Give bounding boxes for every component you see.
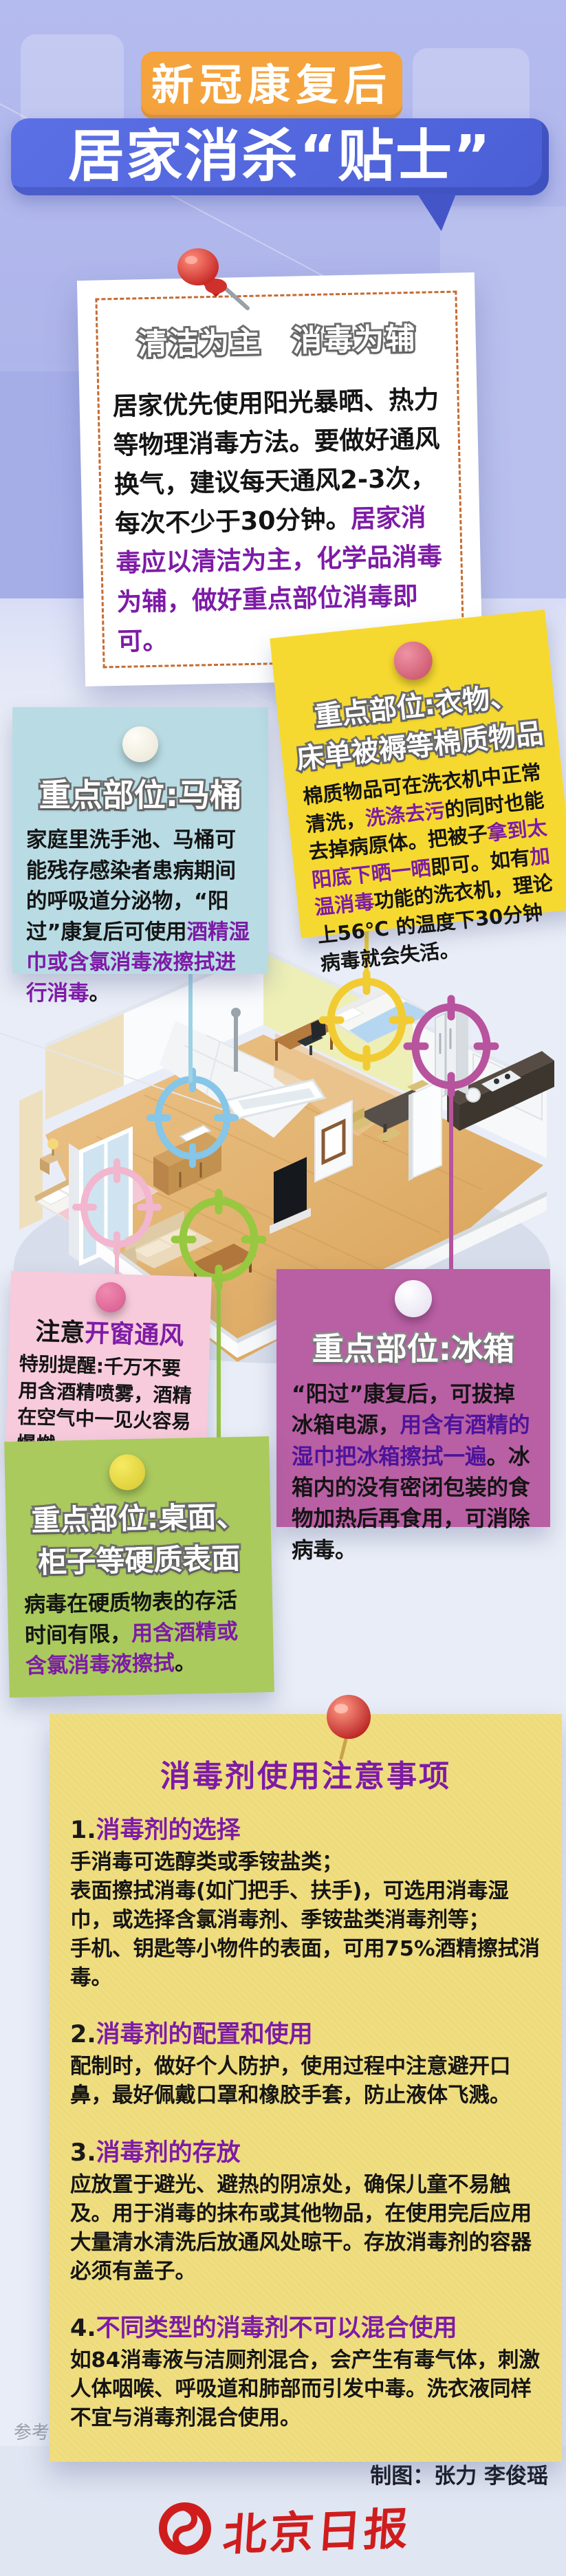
white-pin-icon <box>395 1280 432 1317</box>
tips-title: 消毒剂使用注意事项 <box>70 1751 541 1795</box>
white-pin-icon <box>122 726 158 762</box>
logo-text: 北京日报 <box>221 2493 413 2563</box>
note-toilet: 重点部位:马桶 家庭里洗手池、马桶可能残存感染者患病期间的呼吸道分泌物，“阳过”… <box>12 707 268 974</box>
note-toilet-body: 家庭里洗手池、马桶可能残存感染者患病期间的呼吸道分泌物，“阳过”康复后可使用酒精… <box>26 825 254 1009</box>
pink-pin-icon <box>392 640 435 682</box>
leader-line-table <box>217 1277 221 1444</box>
note-surfaces-title: 重点部位:桌面、 柜子等硬质表面 <box>6 1493 272 1582</box>
note-fabric: 重点部位:衣物、 床单被褥等棉质物品 棉质物品可在洗衣机中正常清洗，洗涤去污的同… <box>270 609 566 938</box>
note-fridge-title: 重点部位:冰箱 <box>276 1324 550 1370</box>
header-badge: 新冠康复后 <box>141 52 402 119</box>
open-door <box>409 1081 442 1181</box>
intro-card-body: 居家优先使用阳光暴晒、热力等物理消毒方法。要做好通风换气，建议每天通风2-3次，… <box>112 380 449 662</box>
credit-text: 制图：张力 李俊瑶 <box>370 2458 548 2489</box>
logo-mark-icon <box>156 2500 214 2557</box>
red-ballpin-icon <box>311 1687 387 1769</box>
yellow-pin-icon <box>109 1454 146 1491</box>
tip-head: 1.消毒剂的选择 <box>70 1810 541 1846</box>
note-fridge: 重点部位:冰箱 “阳过”康复后，可拔掉冰箱电源，用含有酒精的湿巾把冰箱擦拭一遍。… <box>276 1269 550 1527</box>
tip-body: 手消毒可选醇类或季铵盐类； 表面擦拭消毒(如门把手、扶手)，可选用消毒湿巾，或选… <box>70 1848 541 1993</box>
tip-head: 3.消毒剂的存放 <box>70 2133 541 2168</box>
page-title: 居家消杀“贴士” <box>11 118 549 195</box>
note-fabric-body: 棉质物品可在洗衣机中正常清洗，洗涤去污的同时也能去掉病原体。把被子拿到太阳底下晒… <box>301 758 564 978</box>
note-window-title: 注意开窗通风 <box>9 1310 210 1352</box>
pink-pin-icon <box>95 1281 126 1312</box>
infographic-poster: 新冠康复后 居家消杀“贴士” 清洁为主 消毒为辅 居家优先使用阳光暴晒、热力等物… <box>0 0 566 2576</box>
tip-body: 如84消毒液与洁厕剂混合，会产生有毒气体，刺激人体咽喉、呼吸道和肺部而引发中毒。… <box>70 2346 541 2433</box>
tip-section: 2.消毒剂的配置和使用 配制时，做好个人防护，使用过程中注意避开口鼻，最好佩戴口… <box>70 2015 541 2110</box>
note-window: 注意开窗通风 特别提醒:千万不要用含酒精喷雾，酒精在空气中一见火容易爆燃。 <box>6 1270 212 1453</box>
tip-head: 2.消毒剂的配置和使用 <box>70 2015 541 2050</box>
tip-body: 应放置于避光、避热的阴凉处，确保儿童不易触及。用于消毒的抹布或其他物品，在使用完… <box>70 2171 541 2286</box>
red-pushpin-icon <box>168 242 264 318</box>
tip-section: 4.不同类型的消毒剂不可以混合使用 如84消毒液与洁厕剂混合，会产生有毒气体，刺… <box>70 2308 541 2433</box>
tip-head: 4.不同类型的消毒剂不可以混合使用 <box>70 2308 541 2344</box>
note-surfaces-body: 病毒在硬质物表的存活时间有限，用含酒精或含氯消毒液擦拭。 <box>24 1585 258 1682</box>
leader-line-fridge <box>449 1085 453 1274</box>
wall-cream-west <box>19 1090 43 1230</box>
note-toilet-title: 重点部位:马桶 <box>12 770 268 816</box>
note-fridge-body: “阳过”康复后，可拔掉冰箱电源，用含有酒精的湿巾把冰箱擦拭一遍。冰箱内的没有密闭… <box>292 1379 535 1566</box>
note-disinfectant-tips: 消毒剂使用注意事项 1.消毒剂的选择 手消毒可选醇类或季铵盐类； 表面擦拭消毒(… <box>50 1714 562 2462</box>
tip-section: 1.消毒剂的选择 手消毒可选醇类或季铵盐类； 表面擦拭消毒(如门把手、扶手)，可… <box>70 1810 541 1993</box>
beijing-daily-logo: 北京日报 <box>0 2497 566 2560</box>
intro-card-title: 清洁为主 消毒为辅 <box>111 314 443 364</box>
tip-body: 配制时，做好个人防护，使用过程中注意避开口鼻，最好佩戴口罩和橡胶手套，防止液体飞… <box>70 2053 541 2110</box>
note-surfaces: 重点部位:桌面、 柜子等硬质表面 病毒在硬质物表的存活时间有限，用含酒精或含氯消… <box>4 1436 274 1698</box>
tip-section: 3.消毒剂的存放 应放置于避光、避热的阴凉处，确保儿童不易触及。用于消毒的抹布或… <box>70 2133 541 2286</box>
